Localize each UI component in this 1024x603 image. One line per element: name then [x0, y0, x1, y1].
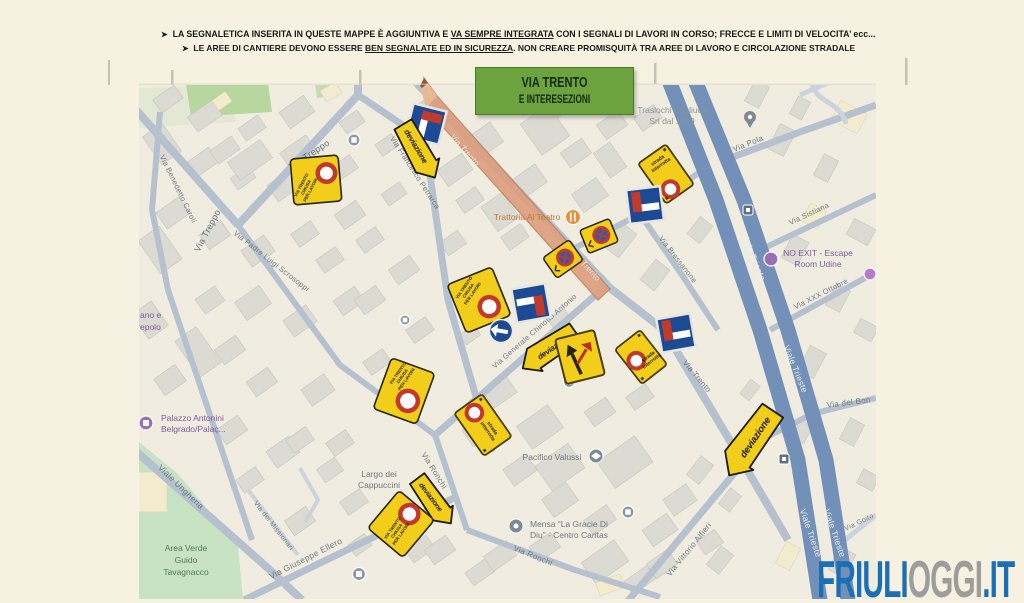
svg-text:Trattoria Al Teatro: Trattoria Al Teatro — [494, 212, 561, 222]
svg-text:Diu” - Centro Caritas: Diu” - Centro Caritas — [530, 530, 608, 540]
svg-text:Room Udine: Room Udine — [794, 259, 842, 269]
svg-text:Belgrado/Palaç...: Belgrado/Palaç... — [161, 424, 226, 434]
svg-text:Tavagnacco: Tavagnacco — [163, 567, 209, 577]
svg-text:Guido: Guido — [175, 555, 198, 565]
svg-text:Area Verde: Area Verde — [165, 543, 208, 553]
svg-text:NO EXIT - Escape: NO EXIT - Escape — [783, 248, 853, 258]
svg-text:Largo dei: Largo dei — [361, 469, 397, 479]
svg-text:Cappuccini: Cappuccini — [358, 480, 400, 490]
svg-text:Pacifico Valussi: Pacifico Valussi — [523, 452, 582, 462]
svg-text:Palazzo Antonini: Palazzo Antonini — [161, 413, 224, 423]
svg-text:Traslochi Pagliuca: Traslochi Pagliuca — [637, 105, 706, 115]
svg-text:epolo: epolo — [140, 322, 161, 332]
svg-text:Mensa “La Gracie Di: Mensa “La Gracie Di — [530, 519, 608, 529]
svg-text:ano e: ano e — [140, 310, 162, 320]
svg-text:Srl dal 1979: Srl dal 1979 — [649, 116, 695, 126]
